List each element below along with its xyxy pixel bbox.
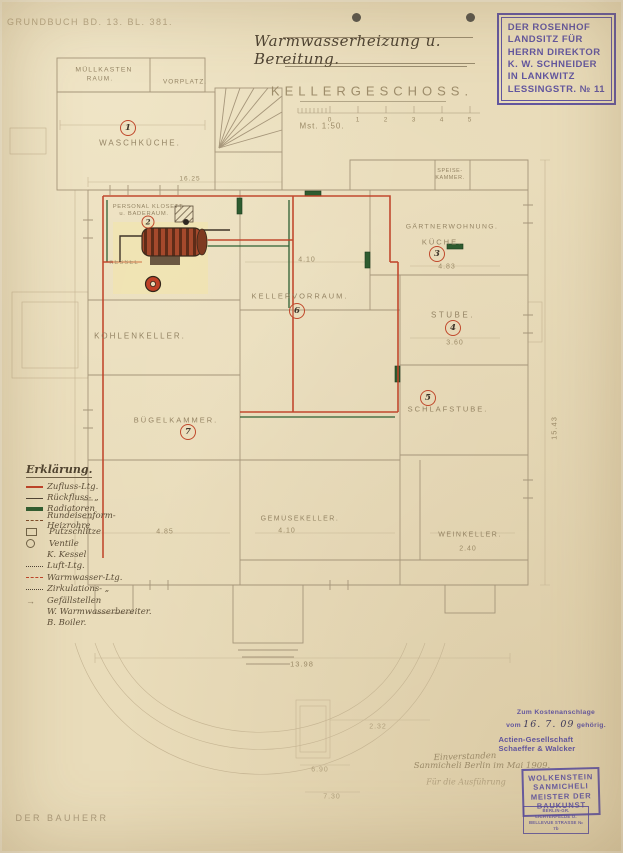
dim-kellervorraum: 4.10	[298, 257, 316, 264]
legend-swatch-return	[26, 498, 43, 499]
pencil-dimension-lines	[10, 106, 550, 792]
dim-d2: 6.90	[311, 767, 329, 774]
legend-item: Warmwasser-Ltg.	[47, 573, 122, 583]
legend-swatch-supply	[26, 486, 43, 488]
legend-swatch-zirkulation	[26, 589, 43, 590]
legend-swatch-putzschlitz	[26, 528, 37, 536]
punch-hole	[466, 13, 475, 22]
address-stamp-line: BERLIN-GR. LICHTERFELDE O.	[526, 808, 586, 820]
cost-estimate-stamp: Zum Kostenanschlage vom 16. 7. 09 gehöri…	[500, 708, 612, 732]
floor-label: KELLERGESCHOSS.	[271, 84, 473, 99]
dim-weinkeller: 2.40	[459, 546, 477, 553]
room-number-1: 1	[120, 120, 136, 136]
dim-d1: 2.32	[369, 724, 387, 731]
legend-swatch-heizrohr	[26, 520, 43, 521]
grundbuch-note: GRUNDBUCH BD. 13. BL. 381.	[7, 17, 173, 27]
legend-item: Rückfluss- „	[47, 493, 99, 503]
scale-tick: 3	[412, 117, 417, 124]
room-number-2: 2	[142, 216, 155, 229]
scale-note: Mst. 1:50.	[299, 122, 344, 131]
punch-hole	[352, 13, 361, 22]
room-label-speisekammer-2: KAMMER.	[435, 175, 464, 181]
room-label-buegelkammer: BÜGELKAMMER.	[134, 416, 218, 425]
dim-d3: 7.30	[323, 794, 341, 801]
room-label-klosett: PERSONAL KLOSETT	[113, 204, 184, 210]
room-label-waschkueche: WASCHKÜCHE.	[99, 139, 181, 148]
legend-swatch-warmwasser	[26, 577, 43, 578]
address-stamp: BERLIN-GR. LICHTERFELDE O. BELLEVUE STRA…	[523, 806, 589, 834]
legend: Erklärung. Zufluss-Ltg. Rückfluss- „ Rad…	[26, 460, 156, 629]
scale-tick: 1	[356, 117, 361, 124]
dim-gemuesekeller: 4.10	[278, 528, 296, 535]
dim-bottom: 13.98	[290, 660, 314, 669]
boiler-body	[142, 228, 202, 256]
legend-item: Zufluss-Ltg.	[47, 482, 98, 492]
legend-item: Putzschlitze	[49, 527, 101, 537]
stamp-line: K. W. SCHNEIDER	[508, 59, 605, 71]
cost-stamp-suffix: gehörig.	[577, 722, 606, 729]
room-number-4: 4	[445, 320, 461, 336]
cost-stamp-prefix: vom	[506, 722, 521, 729]
room-label-kueche: KÜCHE.	[422, 238, 462, 247]
dim-stube: 3.60	[446, 340, 464, 347]
scale-tick: 0	[328, 117, 333, 124]
room-label-kohlenkeller: KOHLENKELLER.	[94, 332, 186, 341]
legend-item: K. Kessel	[47, 550, 86, 560]
room-label-speisekammer: SPEISE-	[437, 168, 462, 174]
room-label-muellkasten-2: RAUM.	[87, 76, 114, 83]
room-number-6: 6	[289, 303, 305, 319]
legend-swatch-gefaelle-arrow-icon: →	[26, 598, 43, 604]
radiators	[237, 191, 463, 382]
room-label-schlafstube: SCHLAFSTUBE.	[408, 405, 489, 414]
stamp-line: LANDSITZ FÜR	[508, 34, 605, 46]
legend-item: Gefällstellen	[47, 596, 101, 606]
legend-item: Ventile	[49, 539, 79, 549]
address-stamp-line: BELLEVUE STRASSE № 7b	[526, 820, 586, 832]
stamp-line: LESSINGSTR. № 11	[508, 84, 605, 96]
scale-tick: 4	[440, 117, 445, 124]
scale-tick: 5	[468, 117, 473, 124]
drawing-sheet: GRUNDBUCH BD. 13. BL. 381. Warmwasserhei…	[0, 0, 623, 853]
legend-item: W. Warmwasserbereiter.	[47, 607, 152, 617]
room-number-7: 7	[180, 424, 196, 440]
stamp-line: DER ROSENHOF	[508, 22, 605, 34]
cost-stamp-line1: Zum Kostenanschlage	[500, 708, 612, 718]
room-label-vorplatz: VORPLATZ.	[163, 79, 207, 86]
legend-title: Erklärung.	[26, 463, 92, 478]
valve	[183, 219, 189, 225]
dim-top: 16.25	[179, 176, 200, 183]
stamp-line: HERRN DIREKTOR	[508, 47, 605, 59]
stamp-line: IN LANKWITZ	[508, 71, 605, 83]
room-label-kellervorraum: KELLERVORRAUM.	[251, 292, 348, 301]
legend-item: Zirkulations- „	[47, 584, 109, 594]
dim-left-cellar: 4.85	[156, 529, 174, 536]
legend-swatch-ventil	[26, 539, 35, 548]
room-label-gemuesekeller: GEMÜSEKELLER.	[261, 516, 340, 523]
room-label-stube: STUBE.	[431, 311, 475, 320]
legend-item: B. Boiler.	[47, 618, 86, 628]
room-number-3: 3	[429, 246, 445, 262]
company-stamp: Actien-Gesellschaft Schaeffer & Walcker	[499, 735, 582, 753]
bauherr-note: DER BAUHERR	[15, 813, 108, 823]
owner-address-stamp: DER ROSENHOF LANDSITZ FÜR HERRN DIREKTOR…	[497, 13, 616, 105]
dim-right: 15.43	[550, 416, 559, 440]
room-label-gaertnerwohnung: GÄRTNERWOHNUNG.	[406, 224, 499, 231]
scale-tick: 2	[384, 117, 389, 124]
approval-note-3: Für die Ausführung	[426, 778, 506, 787]
room-label-kesselraum: KESSEL	[109, 260, 138, 266]
room-label-weinkeller: WEINKELLER.	[438, 532, 502, 539]
dim-kueche: 4.83	[438, 264, 456, 271]
legend-item: Luft-Ltg.	[47, 561, 85, 571]
room-label-muellkasten: MÜLLKASTEN	[75, 67, 132, 74]
legend-swatch-luft	[26, 566, 43, 567]
boiler-assembly	[113, 206, 230, 294]
cost-stamp-date: 16. 7. 09	[523, 719, 574, 730]
legend-swatch-radiator	[26, 507, 43, 511]
